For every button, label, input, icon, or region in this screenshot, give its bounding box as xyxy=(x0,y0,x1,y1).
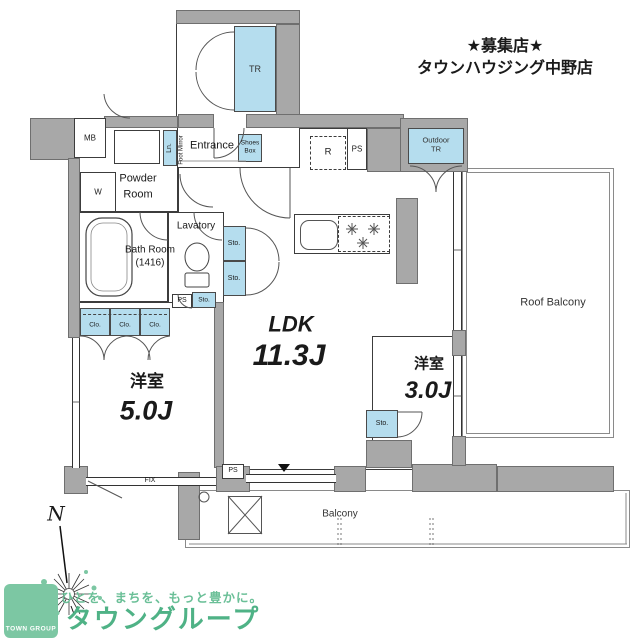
wall xyxy=(68,158,80,338)
shoes-box-label-1: Shoes xyxy=(241,139,259,146)
bath-room-label-1: Bath Room xyxy=(125,244,175,256)
floor-plan: ★募集店★ タウンハウジング中野店 xyxy=(0,0,640,638)
wall xyxy=(214,302,224,468)
wall xyxy=(178,114,214,128)
storage-label-lavatory: Sto. xyxy=(198,296,210,303)
wall xyxy=(452,436,466,466)
town-group-badge-text: TOWN GROUP xyxy=(6,625,56,632)
closet-label-3: Clo. xyxy=(149,321,161,328)
bedroom-east-size-label: 3.0J xyxy=(405,377,452,405)
wall xyxy=(176,10,300,24)
bedroom-west-name-label: 洋室 xyxy=(130,372,164,392)
ps-label-lavatory: PS xyxy=(177,297,186,305)
wall xyxy=(334,466,366,492)
stove-area xyxy=(338,216,390,252)
window-hall-east xyxy=(453,172,462,330)
wall xyxy=(497,466,614,492)
roof-balcony-label: Roof Balcony xyxy=(520,297,585,310)
closet-label-1: Clo. xyxy=(89,321,101,328)
wall xyxy=(30,118,76,160)
wall xyxy=(367,128,402,172)
washer-label: W xyxy=(94,187,102,196)
fix-window-label: FIX xyxy=(145,477,156,485)
shoes-box-label-2: Box xyxy=(244,147,255,154)
logo-tagline: ひとを、まちを、もっと豊かに。 xyxy=(61,591,263,605)
recruit-header-line1: ★募集店★ xyxy=(467,38,544,56)
wall xyxy=(366,440,412,468)
wall xyxy=(396,198,418,284)
escape-hatch xyxy=(228,496,262,534)
door-arc-mb xyxy=(104,94,130,118)
ps-label-bottom: PS xyxy=(228,467,237,475)
window-ldk-south xyxy=(246,474,336,483)
storage-label-2: Sto. xyxy=(228,275,240,283)
recruit-header-line2: タウンハウジング中野店 xyxy=(417,60,593,78)
wall xyxy=(104,116,178,128)
powder-room-label-2: Room xyxy=(123,189,152,202)
closet-label-2: Clo. xyxy=(119,321,131,328)
wall xyxy=(412,464,497,492)
bedroom-west-size-label: 5.0J xyxy=(120,395,173,426)
wall xyxy=(276,24,300,122)
wall xyxy=(64,466,88,494)
north-indicator: N xyxy=(47,503,65,526)
wall xyxy=(452,330,466,356)
vanity-counter xyxy=(114,130,160,164)
storage-label-bedroom-east: Sto. xyxy=(376,420,388,428)
window-bedroom-east xyxy=(453,356,462,436)
entrance-label: Entrance xyxy=(190,140,234,153)
bedroom-east-name-label: 洋室 xyxy=(414,355,444,372)
storage-label-1: Sto. xyxy=(228,240,240,248)
ldk-size-label: 11.3J xyxy=(253,339,326,374)
bath-room-label-2: (1416) xyxy=(136,257,165,269)
trunk-room-label: TR xyxy=(249,64,261,74)
powder-room-label-1: Powder xyxy=(119,173,156,186)
ldk-name-label: LDK xyxy=(268,311,313,336)
outdoor-tr-label-2: TR xyxy=(431,146,441,155)
window-bedroom-west xyxy=(72,338,80,468)
kitchen-sink xyxy=(300,220,338,250)
closet-hanger-rail xyxy=(83,314,167,315)
mb-label: MB xyxy=(84,133,96,142)
linen-label: Ln. xyxy=(166,143,174,153)
lavatory-label: Lavatory xyxy=(177,220,215,232)
foot-mirror-label: Foot Mirror xyxy=(179,135,186,164)
ps-label-top: PS xyxy=(352,144,363,153)
logo-brand-text: タウングループ xyxy=(66,605,260,635)
refrigerator-label: R xyxy=(325,148,332,159)
wall xyxy=(246,114,404,128)
balcony-label: Balcony xyxy=(322,508,358,520)
